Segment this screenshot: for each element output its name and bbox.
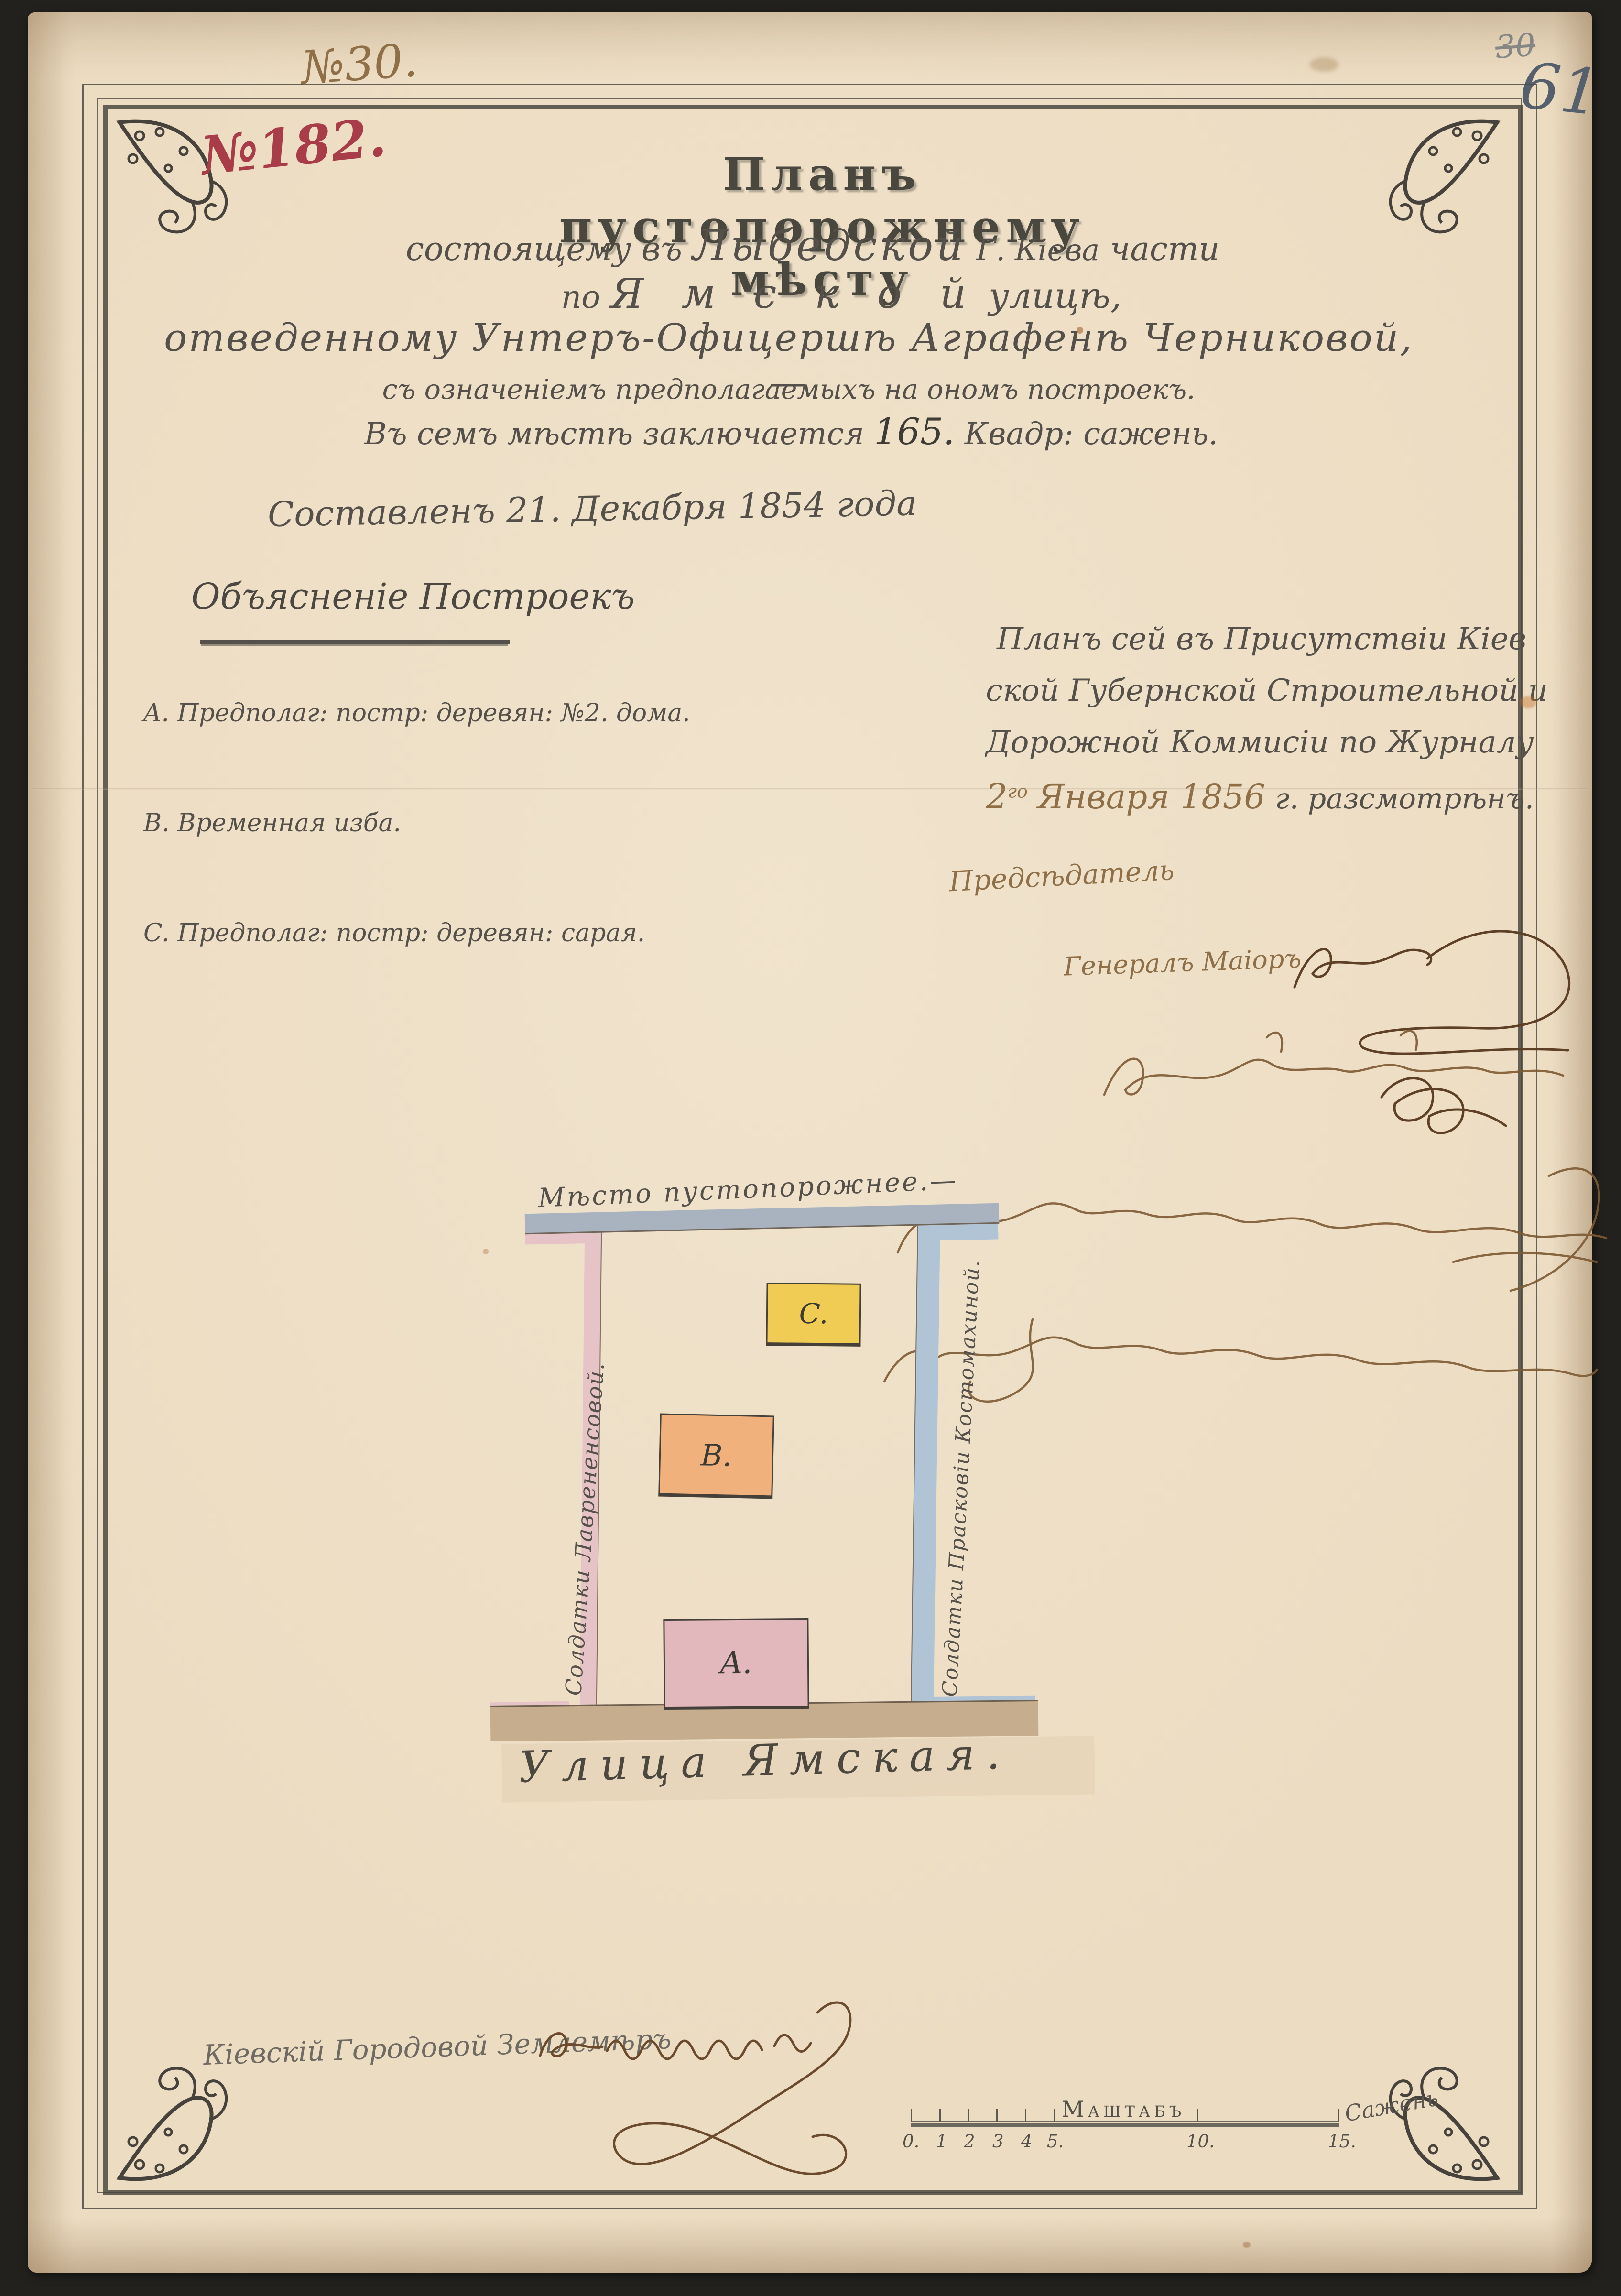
legend-heading: Объясненіе Построекъ [191,576,635,617]
scale-ruler [911,2109,1339,2130]
signature-line-3-icon [875,1291,1606,1415]
scale-num-0: 0. [903,2131,919,2152]
street-name: Я м с к о й [610,270,979,318]
area-prefix: Въ семъ мѣстѣ заключается [364,416,864,452]
approval-date-monthyear: Января 1856 [1037,777,1265,816]
location-suffix: части [1110,230,1219,268]
legend-item-b: B. Временная изба. [143,809,401,838]
area-value: 165. [874,410,955,453]
fold-crease [32,788,1589,790]
scale-num-15: 15. [1328,2131,1356,2152]
legend-key-a: A. [143,699,169,728]
approval-date-suffix: го [1008,781,1028,802]
approval-date-line: 2го Января 1856 г. разсмотрѣнъ. [986,776,1534,816]
buildings-line: съ означеніемъ предполагаемыхъ на ономъ … [363,374,1214,405]
legend-item-c: C. Предполаг: постр: деревян: сарая. [143,919,645,947]
stain-3 [1310,57,1338,72]
approval-line-2: ской Губернской Строительной и [986,673,1548,708]
legend-key-c: C. [143,919,169,947]
scale-tick-5 [1054,2109,1055,2122]
stain-5 [483,1249,489,1254]
scale-tick-10 [1197,2109,1198,2122]
scale-ruler-bar [911,2123,1339,2127]
building-b-label: B. [700,1437,732,1473]
approval-date-tail: г. разсмотрѣнъ. [1275,782,1534,816]
scale-tick-3 [996,2109,998,2122]
stain-1 [1077,327,1083,334]
scale-tick-15 [1338,2109,1339,2122]
scale-num-10: 10. [1186,2131,1215,2152]
legend-key-b: B. [143,809,170,838]
legend-heading-underline [200,640,510,644]
scale-ruler-line [911,2121,1339,2122]
surveyor-signature-icon [526,1984,1004,2209]
scale-tick-2 [968,2109,969,2122]
signature-line-2-icon [889,1147,1616,1300]
signature-line-1-icon [1095,1018,1573,1123]
approval-date-day: 2 [986,776,1008,816]
location-city: Г. Кіева [976,232,1099,267]
scale-num-4: 4 [1021,2131,1033,2152]
approval-line-1: Планъ сей въ Присутствіи Кіев [997,621,1526,657]
scale-tick-1 [939,2109,941,2122]
street-suffix: улицѣ, [989,275,1121,316]
building-a: A. [663,1618,809,1710]
street-prefix: по [561,279,600,316]
location-prefix: состоящему въ [406,230,682,268]
building-c: C. [766,1283,861,1347]
scale-tick-4 [1025,2109,1026,2122]
building-b: B. [658,1414,774,1499]
legend-item-a: A. Предполаг: постр: деревян: №2. дома. [143,699,690,728]
location-district: Лыбедской [693,221,966,270]
corner-flourish-top-right-icon [1385,115,1505,234]
area-line: Въ семъ мѣстѣ заключается 165. Квадр: са… [344,410,1238,453]
location-line: состоящему въ Лыбедской Г. Кіева части [363,221,1262,270]
legend-text-b: Временная изба. [177,809,401,838]
scale-tick-0 [911,2109,912,2122]
corner-flourish-bottom-right-icon [1385,2066,1505,2186]
street-line: по Я м с к о й улицѣ, [511,270,1171,318]
legend-text-c: Предполаг: постр: деревян: сарая. [177,919,645,947]
scanned-document: №30. 30 61 №182. Планъ пустопорожнему мѣ… [0,0,1621,2296]
scale-num-5: 5. [1047,2131,1064,2152]
building-c-label: C. [799,1297,828,1330]
scale-num-3: 3 [992,2131,1004,2152]
building-a-label: A. [720,1645,752,1681]
corner-flourish-bottom-left-icon [112,2066,231,2186]
area-suffix: Квадр: сажень. [965,416,1218,452]
scale-num-2: 2 [964,2131,975,2152]
stain-4 [1243,2242,1251,2248]
legend-text-a: Предполаг: постр: деревян: №2. дома. [177,699,690,728]
scale-num-1: 1 [936,2131,947,2152]
approval-line-3: Дорожной Коммисіи по Журналу [986,725,1534,760]
stain-2 [1520,696,1536,708]
